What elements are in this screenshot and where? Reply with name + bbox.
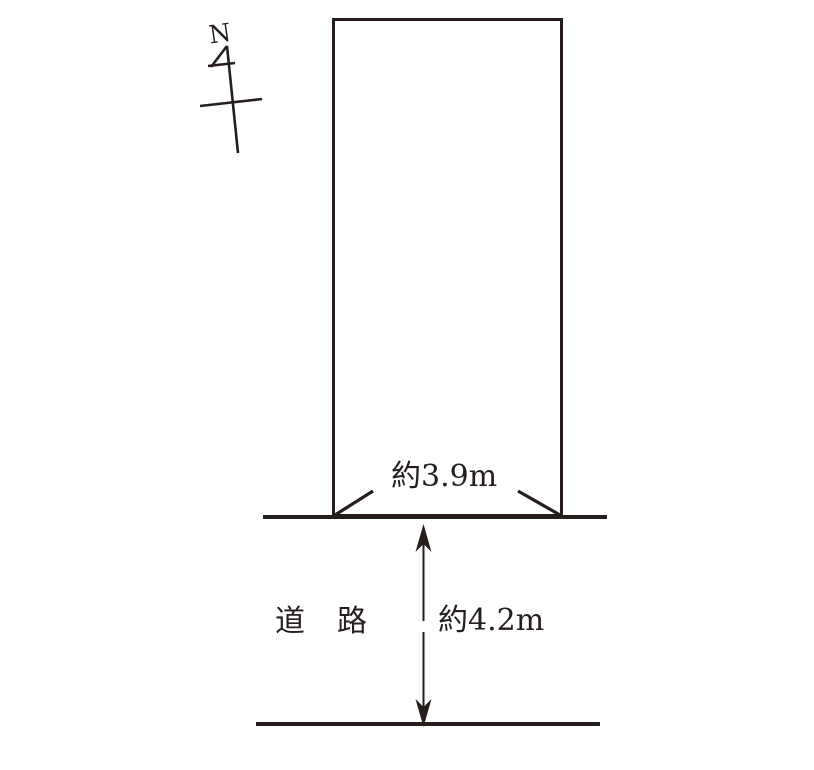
land-plot-outline xyxy=(334,20,562,516)
road-width-dimension-label: 約4.2m xyxy=(438,606,544,636)
road-label: 道 路 xyxy=(275,607,368,637)
dimension-tick-left xyxy=(335,491,373,515)
north-arrow-icon xyxy=(200,46,262,153)
road-width-dimension-arrow xyxy=(416,524,432,727)
north-label: N xyxy=(207,20,232,48)
frontage-dimension-label: 約3.9m xyxy=(391,462,497,492)
land-plot-diagram: N 約3.9m 道 路 約4.2m xyxy=(0,0,814,770)
dimension-tick-right xyxy=(518,491,560,515)
site-plan-drawing xyxy=(0,0,814,770)
